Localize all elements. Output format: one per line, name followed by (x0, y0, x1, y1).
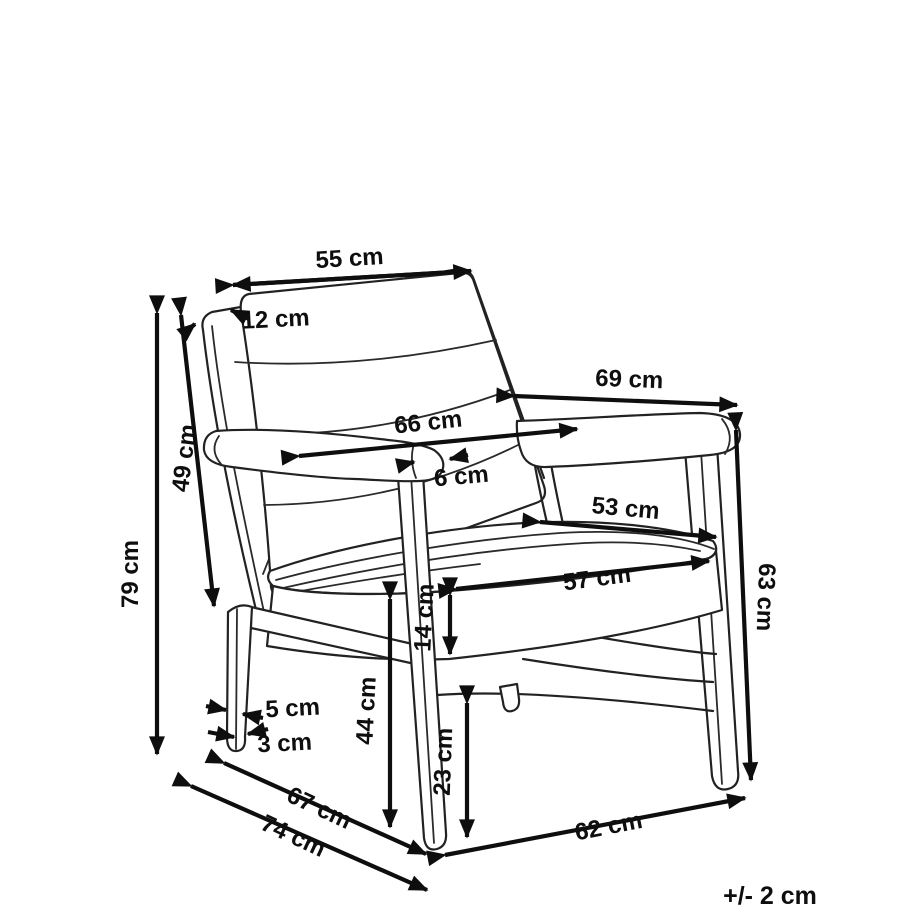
front-apron-edge (437, 693, 713, 711)
dim-label-5cm: 5 cm (265, 694, 321, 724)
dim-label-62cm: 62 cm (573, 807, 645, 846)
dim-label-23cm: 23 cm (429, 727, 458, 796)
dim-arrow-69cm (514, 396, 737, 405)
dim-label-44cm: 44 cm (351, 676, 382, 745)
dim-label-63cm: 63 cm (751, 563, 780, 632)
rear-leg (500, 684, 519, 711)
dim-label-49cm: 49 cm (167, 423, 202, 494)
dim-label-69cm: 69 cm (595, 365, 664, 394)
dim-label-6cm: 6 cm (433, 461, 490, 493)
dim-label-3cm: 3 cm (257, 729, 313, 759)
chair-line-art (202, 269, 740, 849)
dim-label-12cm: 12 cm (241, 304, 310, 335)
dim-label-14cm: 14 cm (409, 583, 440, 652)
rear-left-leg (227, 605, 252, 751)
dim-arrow-5cm-a (206, 706, 226, 710)
dim-arrow-63cm (736, 430, 751, 780)
armchair-dimension-drawing: 55 cm 12 cm 49 cm 79 cm 69 cm 66 cm 6 cm… (0, 0, 920, 920)
dim-label-53cm: 53 cm (591, 492, 661, 525)
right-side-rail-2 (523, 659, 713, 682)
dim-label-55cm: 55 cm (315, 243, 385, 274)
tolerance-note: +/- 2 cm (723, 882, 817, 910)
rear-left-leg-inner-line (236, 609, 237, 749)
dimension-diagram: 55 cm 12 cm 49 cm 79 cm 69 cm 66 cm 6 cm… (0, 0, 920, 920)
dim-label-79cm: 79 cm (117, 540, 144, 608)
